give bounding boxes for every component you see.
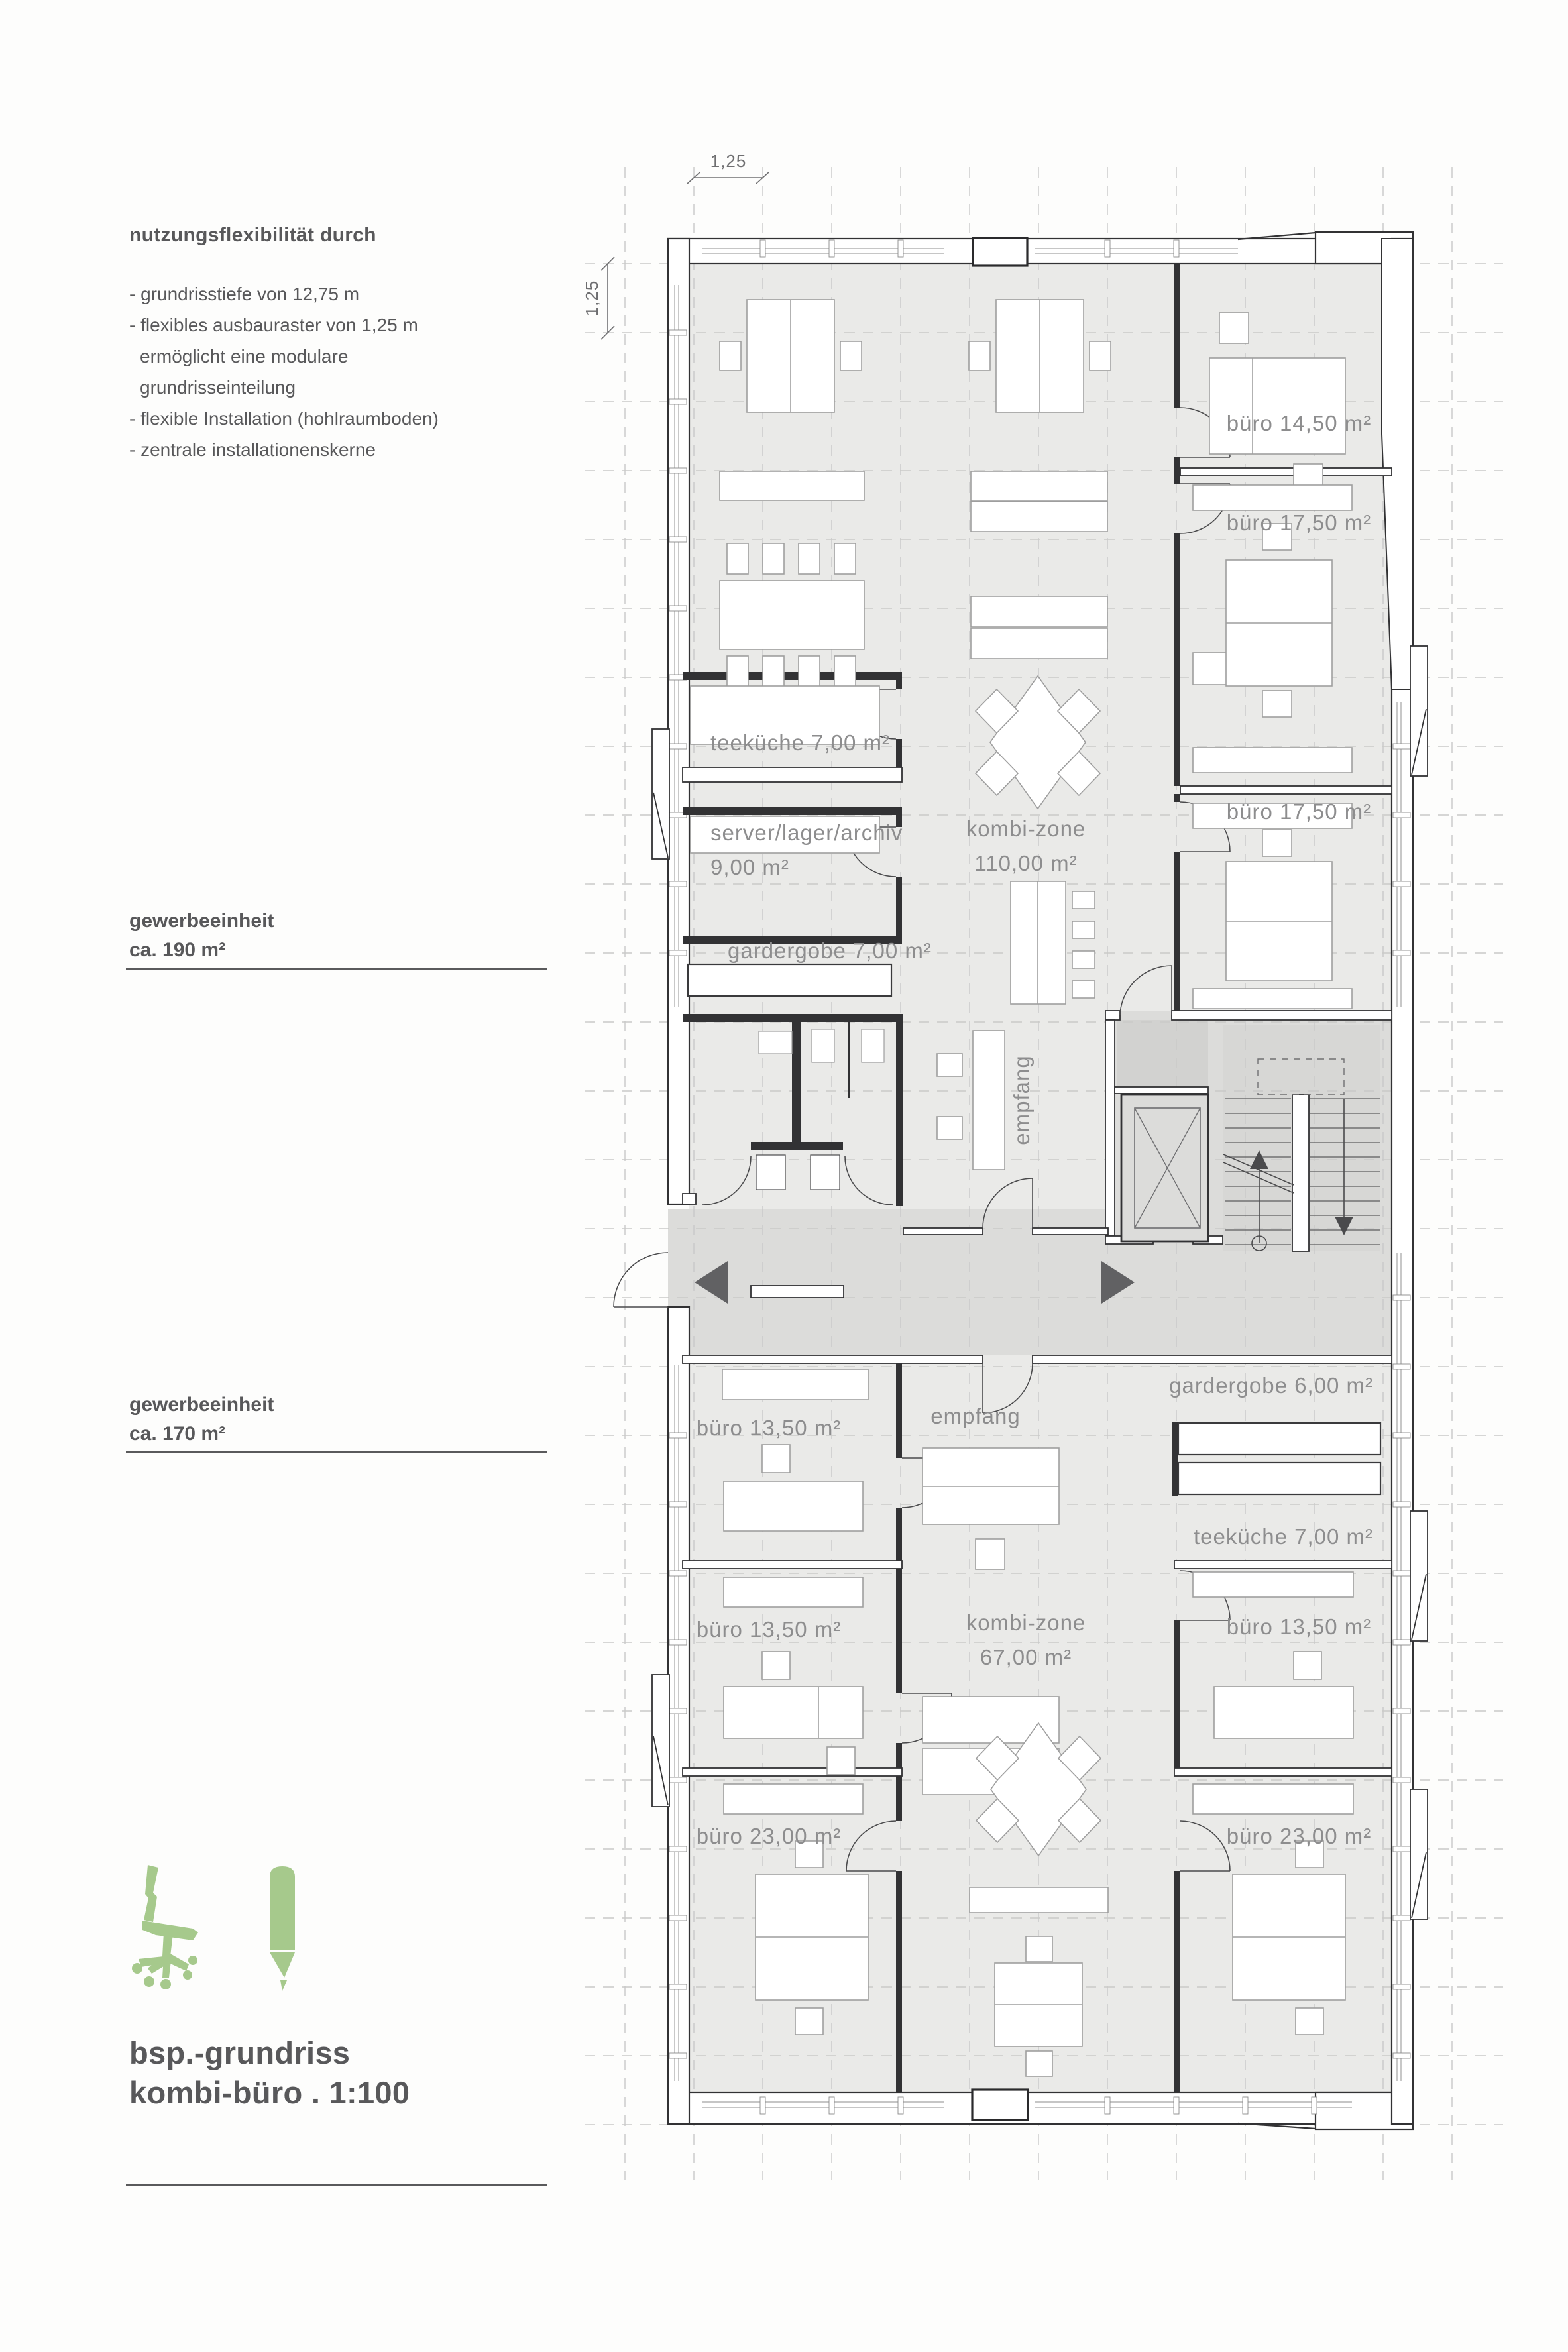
elevator <box>1121 1095 1208 1241</box>
label-kombi-upper-name: kombi-zone <box>966 816 1086 841</box>
label-teekueche-upper: teeküche 7,00 m² <box>710 730 890 755</box>
label-garderobe-upper: gardergobe 7,00 m² <box>728 938 932 963</box>
label-buero-1350-l1: büro 13,50 m² <box>697 1416 841 1440</box>
label-buero-2300-l: büro 23,00 m² <box>697 1824 841 1848</box>
label-garderobe-lower: gardergobe 6,00 m² <box>1169 1373 1373 1398</box>
facade-column-top <box>973 238 1027 266</box>
dim-left-text: 1,25 <box>582 280 602 317</box>
dim-top-text: 1,25 <box>710 151 747 171</box>
plan-sheet: nutzungsflexibilität durch - grundrissti… <box>0 0 1568 2352</box>
label-buero-2300-r: büro 23,00 m² <box>1227 1824 1371 1848</box>
label-kombi-lower-name: kombi-zone <box>966 1610 1086 1635</box>
label-empfang-upper: empfang <box>1009 1055 1034 1145</box>
label-buero-1750-a: büro 17,50 m² <box>1227 510 1371 535</box>
shaft-duct <box>1117 1020 1208 1087</box>
facade-column-bottom <box>972 2090 1028 2120</box>
label-buero-1750-b: büro 17,50 m² <box>1227 799 1371 824</box>
label-kombi-lower-area: 67,00 m² <box>980 1645 1072 1669</box>
label-server-area: 9,00 m² <box>710 855 789 879</box>
label-server-name: server/lager/archiv <box>710 820 903 845</box>
label-empfang-lower: empfang <box>930 1404 1020 1428</box>
floor-plan: 1,25 1,25 <box>0 0 1568 2352</box>
label-buero-1450: büro 14,50 m² <box>1227 411 1371 435</box>
label-teekueche-lower: teeküche 7,00 m² <box>1194 1524 1373 1549</box>
corridor-right <box>1108 1244 1413 1355</box>
label-kombi-upper-area: 110,00 m² <box>974 851 1077 875</box>
label-buero-1350-l2: büro 13,50 m² <box>697 1617 841 1642</box>
label-buero-1350-r: büro 13,50 m² <box>1227 1614 1371 1639</box>
